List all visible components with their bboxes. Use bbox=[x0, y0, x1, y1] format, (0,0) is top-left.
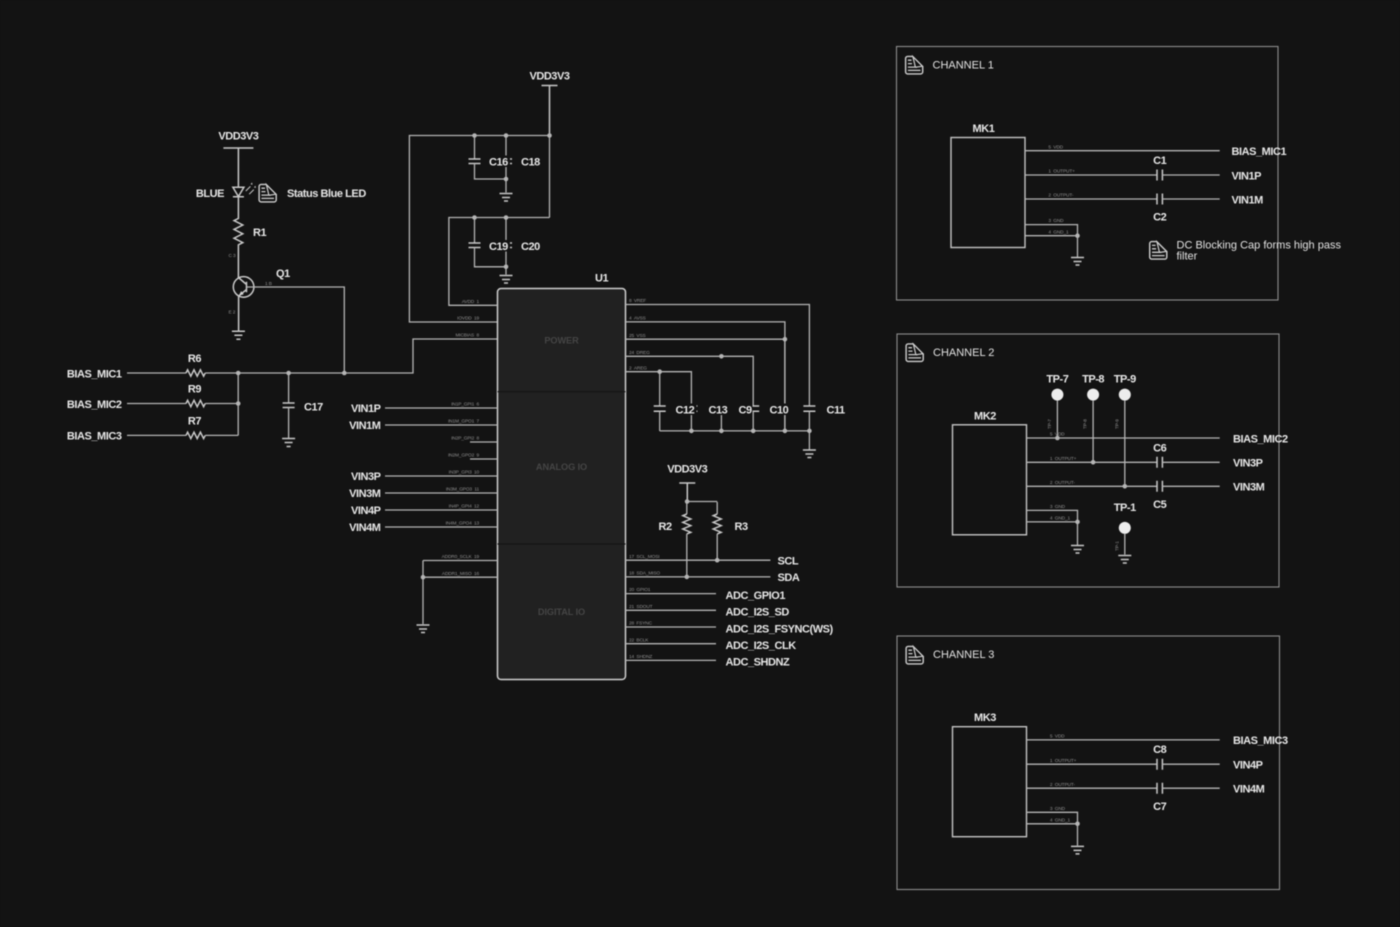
svg-text:TP-7: TP-7 bbox=[1046, 374, 1068, 386]
svg-text:1 OUTPUT+: 1 OUTPUT+ bbox=[1048, 169, 1075, 175]
svg-text:CHANNEL 3: CHANNEL 3 bbox=[933, 649, 994, 661]
svg-text:TP-9: TP-9 bbox=[1114, 419, 1120, 429]
svg-text:C17: C17 bbox=[304, 402, 323, 414]
svg-text:AVDD 1: AVDD 1 bbox=[462, 299, 480, 305]
svg-text:4 GND_1: 4 GND_1 bbox=[1048, 229, 1069, 235]
svg-text:TP-8: TP-8 bbox=[1083, 419, 1089, 429]
svg-text:MK2: MK2 bbox=[974, 410, 996, 422]
svg-text:VIN4M: VIN4M bbox=[1233, 784, 1265, 796]
svg-text:4 AVSS: 4 AVSS bbox=[629, 316, 646, 322]
svg-text:ADDR1_MISO 16: ADDR1_MISO 16 bbox=[442, 571, 480, 577]
svg-text:VIN3P: VIN3P bbox=[351, 471, 381, 483]
svg-text:ADC_SHDNZ: ADC_SHDNZ bbox=[726, 657, 791, 669]
svg-text:C1: C1 bbox=[1153, 155, 1166, 167]
svg-text:5 VDD: 5 VDD bbox=[1048, 144, 1063, 150]
svg-text:C9: C9 bbox=[739, 405, 752, 417]
svg-text:IN2P_GPI2 8: IN2P_GPI2 8 bbox=[451, 436, 479, 442]
svg-text:BIAS_MIC2: BIAS_MIC2 bbox=[1233, 433, 1288, 445]
svg-text:BIAS_MIC1: BIAS_MIC1 bbox=[67, 369, 122, 381]
svg-text:2 AREG: 2 AREG bbox=[629, 365, 647, 371]
svg-text:4 GND_1: 4 GND_1 bbox=[1050, 516, 1071, 522]
svg-text:POWER: POWER bbox=[544, 336, 579, 346]
svg-text:25 VSS: 25 VSS bbox=[629, 333, 646, 339]
svg-text:4 GND_1: 4 GND_1 bbox=[1050, 817, 1071, 823]
svg-text:IN4M_GPO4 13: IN4M_GPO4 13 bbox=[445, 521, 479, 527]
svg-text:IOVDD 19: IOVDD 19 bbox=[457, 316, 479, 322]
svg-text:BIAS_MIC2: BIAS_MIC2 bbox=[67, 399, 122, 411]
svg-text:5 VDD: 5 VDD bbox=[1050, 432, 1065, 438]
svg-text:2 OUTPUT-: 2 OUTPUT- bbox=[1048, 193, 1073, 199]
svg-text:C2: C2 bbox=[1153, 212, 1166, 224]
svg-text:SCL: SCL bbox=[778, 556, 799, 568]
svg-text:C20: C20 bbox=[521, 241, 540, 253]
svg-text:C5: C5 bbox=[1153, 499, 1166, 511]
svg-text:E 2: E 2 bbox=[229, 310, 236, 316]
svg-text:21 SDOUT: 21 SDOUT bbox=[629, 604, 653, 610]
svg-text:VIN1P: VIN1P bbox=[1232, 170, 1262, 182]
svg-text:VIN3P: VIN3P bbox=[1233, 458, 1263, 470]
svg-text:ADDR0_SCLK 19: ADDR0_SCLK 19 bbox=[442, 554, 480, 560]
svg-text:1 OUTPUT+: 1 OUTPUT+ bbox=[1050, 758, 1077, 764]
svg-text:R3: R3 bbox=[735, 521, 748, 533]
svg-text:ADC_I2S_SD: ADC_I2S_SD bbox=[726, 607, 790, 619]
svg-text:IN2M_GPO2 9: IN2M_GPO2 9 bbox=[448, 453, 479, 459]
svg-text:R2: R2 bbox=[659, 521, 672, 533]
svg-text:IN3M_GPO3 11: IN3M_GPO3 11 bbox=[446, 487, 480, 493]
svg-text:filter: filter bbox=[1177, 251, 1198, 263]
svg-text:3 GND: 3 GND bbox=[1050, 806, 1066, 812]
svg-text:ADC_I2S_FSYNC(WS): ADC_I2S_FSYNC(WS) bbox=[726, 623, 834, 635]
svg-text:24 DREG: 24 DREG bbox=[629, 350, 650, 356]
svg-text:C10: C10 bbox=[770, 405, 789, 417]
svg-text:BIAS_MIC3: BIAS_MIC3 bbox=[67, 431, 122, 443]
svg-text:TP-8: TP-8 bbox=[1082, 374, 1104, 386]
svg-text:3 GND: 3 GND bbox=[1050, 504, 1066, 510]
svg-text:ADC_GPIO1: ADC_GPIO1 bbox=[726, 590, 786, 602]
svg-text:IN3P_GPI3 10: IN3P_GPI3 10 bbox=[449, 470, 480, 476]
svg-text:Status Blue LED: Status Blue LED bbox=[287, 188, 366, 200]
svg-text:DC Blocking Cap forms high pas: DC Blocking Cap forms high pass bbox=[1177, 240, 1342, 252]
svg-text:C6: C6 bbox=[1153, 442, 1166, 454]
svg-text:VIN3M: VIN3M bbox=[349, 488, 381, 500]
svg-text:VIN4M: VIN4M bbox=[349, 522, 381, 534]
svg-text:CHANNEL 2: CHANNEL 2 bbox=[933, 347, 994, 359]
svg-text:C11: C11 bbox=[827, 405, 846, 417]
svg-text:TP-1: TP-1 bbox=[1114, 541, 1120, 551]
svg-text:18 SDA_MISO: 18 SDA_MISO bbox=[629, 571, 660, 577]
svg-text:VDD3V3: VDD3V3 bbox=[529, 71, 569, 83]
svg-text:BIAS_MIC1: BIAS_MIC1 bbox=[1232, 146, 1287, 158]
svg-text:1 B: 1 B bbox=[265, 281, 272, 287]
svg-text:VIN1P: VIN1P bbox=[351, 403, 381, 415]
svg-text:1 OUTPUT+: 1 OUTPUT+ bbox=[1050, 456, 1077, 462]
svg-text:R6: R6 bbox=[188, 353, 201, 365]
svg-text:MK3: MK3 bbox=[974, 712, 996, 724]
svg-text:VIN4P: VIN4P bbox=[351, 505, 381, 517]
svg-text:28 FSYNC: 28 FSYNC bbox=[629, 621, 653, 627]
svg-text:8 VREF: 8 VREF bbox=[629, 298, 646, 304]
svg-text:VIN4P: VIN4P bbox=[1233, 760, 1263, 772]
svg-text:VIN1M: VIN1M bbox=[1232, 194, 1264, 206]
svg-text:BLUE: BLUE bbox=[196, 188, 224, 200]
svg-text:U1: U1 bbox=[595, 273, 608, 285]
svg-text:SDA: SDA bbox=[778, 572, 800, 584]
svg-text:Q1: Q1 bbox=[276, 268, 290, 280]
svg-text:MK1: MK1 bbox=[973, 123, 995, 135]
svg-text:C13: C13 bbox=[709, 405, 728, 417]
svg-text:TP-7: TP-7 bbox=[1047, 419, 1053, 429]
svg-text:R1: R1 bbox=[253, 227, 266, 239]
svg-text:R9: R9 bbox=[188, 384, 201, 396]
svg-text:5 VDD: 5 VDD bbox=[1050, 734, 1065, 740]
svg-text:VIN3M: VIN3M bbox=[1233, 482, 1265, 494]
svg-text:C8: C8 bbox=[1153, 744, 1166, 756]
svg-text:22 BCLK: 22 BCLK bbox=[629, 637, 649, 643]
svg-text:2 OUTPUT-: 2 OUTPUT- bbox=[1050, 782, 1075, 788]
svg-text:DIGITAL IO: DIGITAL IO bbox=[538, 607, 585, 617]
svg-text:IN4P_GPI4 12: IN4P_GPI4 12 bbox=[449, 504, 480, 510]
svg-text:VDD3V3: VDD3V3 bbox=[667, 464, 707, 476]
svg-text:14 SHDNZ: 14 SHDNZ bbox=[629, 654, 652, 660]
svg-text:BIAS_MIC3: BIAS_MIC3 bbox=[1233, 735, 1288, 747]
svg-text:IN1P_GPI1 6: IN1P_GPI1 6 bbox=[451, 402, 479, 408]
svg-text:20 GPIO1: 20 GPIO1 bbox=[629, 587, 651, 593]
svg-text:VDD3V3: VDD3V3 bbox=[218, 131, 258, 143]
svg-text:C12: C12 bbox=[676, 405, 695, 417]
svg-text:R7: R7 bbox=[188, 416, 201, 428]
svg-text:TP-9: TP-9 bbox=[1114, 374, 1136, 386]
svg-text:C16: C16 bbox=[489, 157, 508, 169]
svg-text:TP-1: TP-1 bbox=[1114, 502, 1136, 514]
svg-text:C7: C7 bbox=[1153, 801, 1166, 813]
svg-text:IN1M_GPO1 7: IN1M_GPO1 7 bbox=[448, 419, 479, 425]
svg-text:C19: C19 bbox=[489, 241, 508, 253]
svg-text:CHANNEL 1: CHANNEL 1 bbox=[933, 60, 994, 72]
svg-text:17 SCL_MOSI: 17 SCL_MOSI bbox=[629, 554, 659, 560]
svg-text:C18: C18 bbox=[521, 157, 540, 169]
svg-text:C 3: C 3 bbox=[229, 253, 236, 259]
svg-text:3 GND: 3 GND bbox=[1048, 218, 1064, 224]
svg-text:MICBIAS 8: MICBIAS 8 bbox=[455, 333, 479, 339]
svg-text:2 OUTPUT-: 2 OUTPUT- bbox=[1050, 480, 1075, 486]
svg-text:VIN1M: VIN1M bbox=[349, 420, 381, 432]
svg-text:ADC_I2S_CLK: ADC_I2S_CLK bbox=[726, 640, 797, 652]
svg-text:ANALOG IO: ANALOG IO bbox=[536, 462, 587, 472]
